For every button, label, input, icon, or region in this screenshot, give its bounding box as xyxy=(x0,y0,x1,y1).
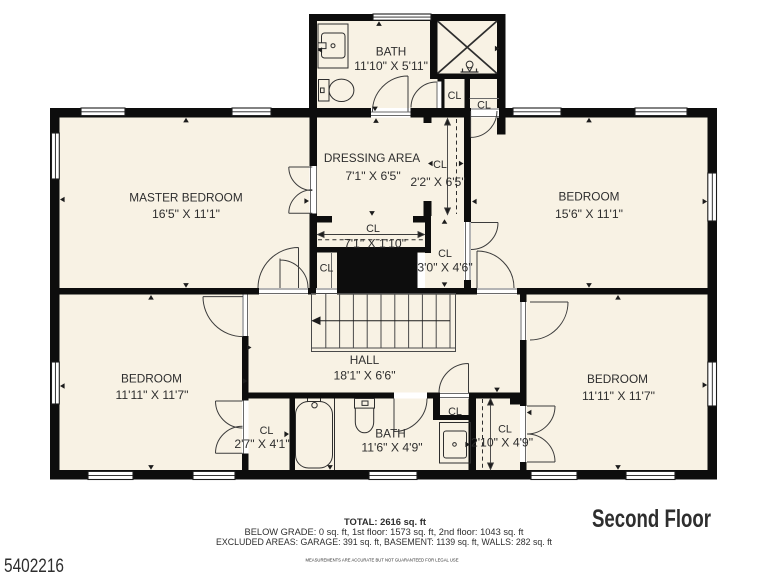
svg-text:15'6" X 11'1": 15'6" X 11'1" xyxy=(555,207,623,221)
svg-text:Second Floor: Second Floor xyxy=(592,505,711,533)
svg-text:BEDROOM: BEDROOM xyxy=(559,190,620,204)
svg-text:2'10" X 4'9": 2'10" X 4'9" xyxy=(471,436,533,450)
svg-text:BATH: BATH xyxy=(376,45,407,59)
svg-text:2'7" X 4'1": 2'7" X 4'1" xyxy=(234,437,289,451)
svg-text:CL: CL xyxy=(498,424,512,436)
svg-text:11'6" X 4'9": 11'6" X 4'9" xyxy=(361,441,422,455)
svg-text:HALL: HALL xyxy=(350,353,380,367)
svg-text:MASTER BEDROOM: MASTER BEDROOM xyxy=(129,191,242,205)
svg-text:CL: CL xyxy=(320,263,334,275)
svg-text:18'1" X 6'6": 18'1" X 6'6" xyxy=(333,369,395,383)
svg-text:CL: CL xyxy=(477,100,491,112)
svg-text:DRESSING AREA: DRESSING AREA xyxy=(324,151,420,165)
svg-text:BEDROOM: BEDROOM xyxy=(587,372,648,386)
svg-text:7'1" X 1'10": 7'1" X 1'10" xyxy=(344,237,406,251)
svg-text:EXCLUDED AREAS: GARAGE: 391 sq: EXCLUDED AREAS: GARAGE: 391 sq. ft, BASE… xyxy=(216,537,552,547)
svg-text:3'0" X 4'6": 3'0" X 4'6" xyxy=(417,261,472,275)
svg-text:7'1" X 6'5": 7'1" X 6'5" xyxy=(345,169,400,183)
svg-text:11'10" X 5'11": 11'10" X 5'11" xyxy=(354,59,428,73)
svg-text:CL: CL xyxy=(366,223,380,235)
svg-text:11'11" X 11'7": 11'11" X 11'7" xyxy=(582,389,655,403)
svg-text:16'5" X 11'1": 16'5" X 11'1" xyxy=(152,207,220,221)
svg-text:TOTAL: 2616 sq. ft: TOTAL: 2616 sq. ft xyxy=(344,517,426,527)
svg-text:BELOW GRADE: 0 sq. ft, 1st flo: BELOW GRADE: 0 sq. ft, 1st floor: 1573 s… xyxy=(245,527,524,537)
svg-text:MEASUREMENTS ARE ACCURATE BUT: MEASUREMENTS ARE ACCURATE BUT NOT GUARAN… xyxy=(306,558,459,563)
svg-text:BATH: BATH xyxy=(375,427,406,441)
svg-text:11'11" X 11'7": 11'11" X 11'7" xyxy=(116,388,189,402)
svg-text:CL: CL xyxy=(260,425,274,437)
svg-text:CL: CL xyxy=(448,406,462,418)
svg-text:BEDROOM: BEDROOM xyxy=(121,372,182,386)
svg-text:CL: CL xyxy=(438,248,452,260)
svg-text:CL: CL xyxy=(433,159,447,171)
svg-text:2'2" X 6'5": 2'2" X 6'5" xyxy=(410,175,465,189)
svg-text:5402216: 5402216 xyxy=(4,556,64,576)
svg-text:CL: CL xyxy=(448,90,462,102)
